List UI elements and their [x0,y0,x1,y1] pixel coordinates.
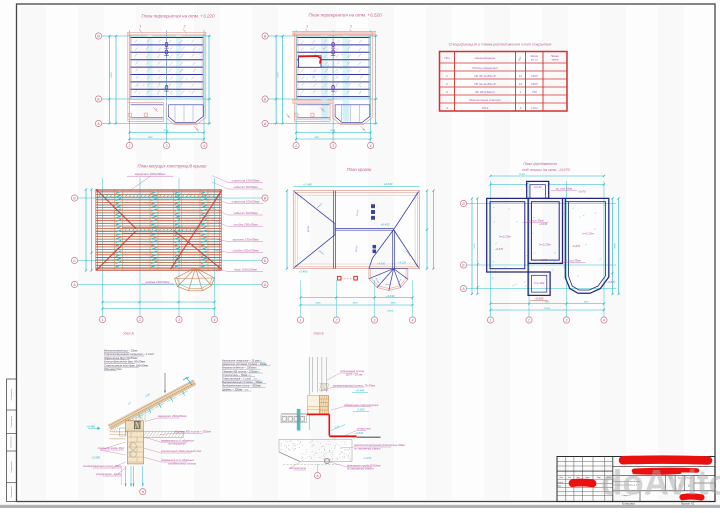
svg-text:–0,670: –0,670 [571,244,580,248]
svg-text:План перекрытия на отм. +3,220: План перекрытия на отм. +3,220 [141,14,215,19]
svg-text:Цементно-песчаная стяжка – 40м: Цементно-песчаная стяжка – 40мм [222,362,267,366]
svg-text:12: 12 [519,74,523,78]
svg-text:3000: 3000 [330,130,336,132]
svg-text:ПК 36-12-8АтV: ПК 36-12-8АтV [474,74,497,78]
svg-text:Гидроизоляционное покрытие – 1: Гидроизоляционное покрытие – 1 слой [104,352,154,356]
svg-text:7400: 7400 [314,136,320,139]
svg-text:doAvito: doAvito [601,464,720,503]
svg-text:Спецификация и схема расположе: Спецификация и схема расположения плит п… [449,42,553,47]
svg-text:h=2,20м: h=2,20м [582,232,593,236]
svg-text:2: 2 [183,25,186,29]
svg-text:–0,670: –0,670 [606,280,615,284]
svg-text:Узел Б: Узел Б [313,332,324,336]
svg-text:Разраб: Разраб [558,482,564,484]
svg-text:Кол: Кол [568,477,571,479]
svg-text:Выравнивающая стяжка – 30мм: Выравнивающая стяжка – 30мм [222,380,262,384]
svg-text:–0,600: –0,600 [534,297,544,301]
svg-text:2: 2 [527,318,530,322]
svg-text:ПК 42-12-8АтV: ПК 42-12-8АтV [474,82,497,86]
svg-text:h=2,10м: h=2,10м [534,281,545,285]
svg-text:7400: 7400 [148,136,154,139]
svg-text:h=2,20: h=2,20 [534,186,542,189]
svg-text:4: 4 [214,318,216,322]
svg-text:2: 2 [294,144,297,148]
svg-text:2: 2 [445,82,448,86]
svg-text:уклон: уклон [384,284,392,286]
svg-text:+3,480: +3,480 [299,270,308,274]
svg-text:9000: 9000 [474,243,476,249]
svg-text:сборная ЖБ плита – 320мм: сборная ЖБ плита – 320мм [174,430,211,434]
svg-text:по периметру здания: по периметру здания [354,447,381,451]
svg-text:1: 1 [102,318,104,322]
svg-text:по периметру здания: по периметру здания [347,467,374,471]
svg-text:монолитный облегченный пояс: монолитный облегченный пояс [161,449,202,453]
svg-text:0,000: 0,000 [358,408,365,412]
svg-text:Стропильные ноги брус 100х50мм: Стропильные ноги брус 100х50мм [104,363,148,367]
svg-text:–1,170: –1,170 [362,456,372,460]
svg-text:–0,670: –0,670 [538,222,547,226]
svg-text:минераловатный утепл. 75х75мм: минераловатный утепл. 75х75мм [333,383,375,387]
svg-text:под мауэрлат: под мауэрлат [168,442,187,446]
svg-text:6000: 6000 [278,72,280,78]
svg-text:2: 2 [335,318,338,322]
svg-text:пр. шов 30мм: пр. шов 30мм [527,218,544,222]
svg-text:2: 2 [349,25,352,29]
svg-text:Фундаментная плита – 300мм: Фундаментная плита – 300мм [222,384,260,388]
svg-text:3800: 3800 [353,303,359,305]
svg-text:Сборная ЖБ плита – 220мм: Сборная ЖБ плита – 220мм [222,369,257,373]
svg-text:Приме-: Приме- [551,54,560,58]
svg-text:под плиты на отм. –0,670: под плиты на отм. –0,670 [522,168,570,172]
svg-text:1625: 1625 [531,82,538,86]
svg-text:Пров: Пров [558,486,562,488]
svg-text:3: 3 [166,144,168,148]
svg-text:мауэрлат 200х200мм: мауэрлат 200х200мм [158,414,187,418]
svg-text:6000: 6000 [111,72,113,78]
svg-text:Согласовано: Согласовано [11,437,13,448]
svg-text:Формат А3: Формат А3 [681,502,695,506]
svg-text:чание: чание [551,59,559,62]
svg-text:пр. шов 30мм: пр. шов 30мм [556,187,573,191]
svg-text:1525: 1525 [531,74,538,78]
svg-text:11300: 11300 [544,308,551,310]
svg-text:Обшивка 5мм: Обшивка 5мм [104,367,122,371]
svg-text:–0,630: –0,630 [354,431,364,435]
svg-text:3: 3 [178,318,180,322]
svg-text:геотекстиль: геотекстиль [289,467,307,470]
svg-text:+4,480: +4,480 [86,425,95,429]
svg-text:+2,480: +2,480 [303,183,312,187]
svg-text:базы 100х100мм: базы 100х100мм [234,268,257,272]
svg-text:h=2,20м: h=2,20м [539,243,550,247]
svg-text:+3,430: +3,430 [386,294,395,298]
svg-text:4: 4 [370,144,372,148]
svg-text:3000: 3000 [164,130,170,132]
svg-text:План несущих конструкций крыши: План несущих конструкций крыши [138,164,208,169]
svg-text:1: 1 [140,25,142,29]
svg-text:+4,230: +4,230 [398,262,406,265]
svg-text:стропила 100х50мм: стропила 100х50мм [232,200,260,204]
svg-text:минераловатный утепл. 45мм: минераловатный утепл. 45мм [83,464,121,468]
svg-text:+3,580: +3,580 [91,456,100,460]
svg-text:обмазочная гидроизоляция: обмазочная гидроизоляция [344,403,379,407]
svg-text:4: 4 [412,318,414,322]
svg-text:+6,430: +6,430 [381,223,390,227]
svg-text:4: 4 [603,318,605,322]
svg-text:Напольное покрытие – 15 мм: Напольное покрытие – 15 мм [222,359,259,363]
svg-text:–0,670: –0,670 [494,247,503,251]
svg-text:3: 3 [566,318,568,322]
svg-text:стропила 150х50мм: стропила 150х50мм [232,179,260,183]
svg-text:ед, кг: ед, кг [531,58,539,62]
svg-text:+0,480: +0,480 [356,389,365,393]
svg-text:Монолитные участки: Монолитные участки [469,98,501,102]
svg-text:ПК 36-6-8АтV: ПК 36-6-8АтV [475,90,496,94]
svg-text:14: 14 [519,82,523,86]
svg-text:1: 1 [300,318,302,322]
svg-text:Плиты покрытия: Плиты покрытия [472,66,498,70]
svg-text:–0,670: –0,670 [577,190,586,194]
svg-text:План перекрытия на отм. +6,520: План перекрытия на отм. +6,520 [308,13,382,18]
svg-text:750: 750 [532,90,537,94]
svg-text:пр. шов 30мм: пр. шов 30мм [564,258,581,262]
svg-text:2: 2 [128,144,131,148]
svg-text:1721: 1721 [531,106,538,110]
svg-text:мауэрлат 200х200мм: мауэрлат 200х200мм [135,172,166,176]
svg-text:Копировал: Копировал [622,502,635,506]
svg-text:Согласовано: Согласовано [11,486,13,497]
svg-text:3800: 3800 [545,301,551,303]
svg-text:Гидроизоляция – 1 слой: Гидроизоляция – 1 слой [222,377,251,381]
svg-text:отмостка: отмостка [357,428,371,431]
svg-text:План фундамента: План фундамента [523,162,556,166]
svg-text:11300: 11300 [519,174,526,176]
svg-text:10600: 10600 [387,311,394,313]
svg-text:Наименование: Наименование [475,56,496,60]
svg-text:Согласовано: Согласовано [11,389,13,400]
svg-text:кобылки 50х50мм: кобылки 50х50мм [234,185,258,189]
svg-text:h=2,20м: h=2,20м [499,235,510,239]
svg-text:ендова 150х50мм: ендова 150х50мм [146,280,170,284]
svg-text:стойка 200х200мм: стойка 200х200мм [233,249,259,253]
svg-text:стойка 250х50мм: стойка 250х50мм [233,223,257,227]
svg-text:Металлочерепица – 10мм: Металлочерепица – 10мм [104,349,138,353]
svg-text:3800: 3800 [584,301,590,303]
svg-text:газобетонных блоков: газобетонных блоков [168,462,196,466]
svg-text:ЦСП – 10 мм: ЦСП – 10 мм [346,373,362,377]
svg-text:2: 2 [138,318,141,322]
svg-text:УМ-1: УМ-1 [481,106,488,110]
svg-text:Утеплитель – 50мм: Утеплитель – 50мм [222,373,247,377]
svg-text:Обрешетка брус 50х50мм: Обрешетка брус 50х50мм [104,356,138,360]
svg-text:Контробрешетка брус 50х50мм: Контробрешетка брус 50х50мм [104,360,145,364]
svg-text:кобылки 50х50мм: кобылки 50х50мм [234,211,258,215]
svg-text:3000: 3000 [316,303,322,305]
svg-text:Согласовано: Согласовано [11,461,13,472]
svg-text:Узел А: Узел А [123,332,134,336]
svg-text:уклон: уклон [307,225,310,233]
svg-text:3: 3 [374,318,376,322]
svg-text:3800: 3800 [391,303,397,305]
svg-text:Масса: Масса [530,54,538,58]
svg-text:9000: 9000 [615,243,617,249]
svg-text:+6,430: +6,430 [377,263,385,266]
svg-text:План кровли: План кровли [347,167,372,172]
svg-text:1: 1 [490,318,492,322]
svg-text:–0,670: –0,670 [538,258,547,262]
svg-text:1: 1 [306,25,308,29]
svg-text:Керамзитобетон – 100мм: Керамзитобетон – 100мм [222,366,255,370]
svg-text:Б: Б [142,490,144,494]
svg-text:Поз: Поз [444,56,450,60]
svg-text:Согласовано: Согласовано [11,416,13,427]
svg-text:3: 3 [332,144,334,148]
svg-text:прогоны 150х50мм: прогоны 150х50мм [233,238,259,242]
svg-text:4: 4 [203,144,205,148]
svg-text:+6,430: +6,430 [384,182,393,186]
svg-text:Щебень – 300мм: Щебень – 300мм [222,387,243,391]
svg-text:Б: Б [317,474,319,478]
